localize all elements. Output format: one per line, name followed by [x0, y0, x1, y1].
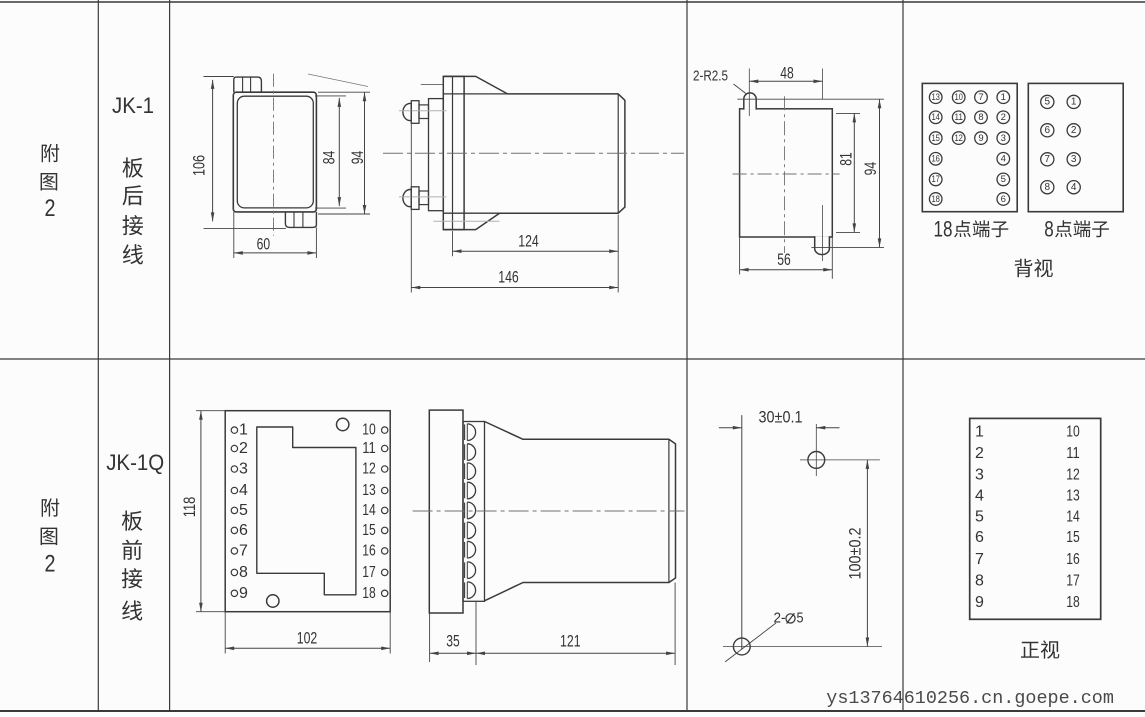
svg-text:8: 8: [978, 112, 983, 123]
svg-text:3: 3: [1071, 154, 1077, 165]
svg-text:13: 13: [1066, 487, 1080, 504]
svg-text:1: 1: [1001, 92, 1006, 103]
svg-text:1: 1: [1071, 97, 1077, 108]
svg-text:17: 17: [1066, 572, 1080, 589]
svg-text:6: 6: [1045, 125, 1051, 136]
svg-text:94: 94: [348, 151, 367, 165]
svg-text:10: 10: [954, 92, 963, 103]
svg-text:2-: 2-: [774, 610, 786, 627]
svg-text:94: 94: [861, 162, 880, 176]
svg-text:7: 7: [978, 92, 983, 103]
svg-text:5: 5: [1045, 97, 1051, 108]
svg-text:15: 15: [1066, 529, 1080, 546]
svg-text:12: 12: [1066, 467, 1080, 484]
svg-text:6: 6: [239, 522, 248, 539]
svg-text:4: 4: [1071, 182, 1077, 193]
svg-text:2-R2.5: 2-R2.5: [693, 68, 728, 85]
svg-text:16: 16: [362, 542, 376, 559]
svg-text:18: 18: [1066, 594, 1080, 611]
svg-text:5: 5: [1001, 174, 1006, 185]
svg-text:2: 2: [239, 440, 248, 457]
svg-text:15: 15: [931, 133, 940, 144]
svg-text:JK-1Q: JK-1Q: [106, 450, 164, 475]
svg-text:7: 7: [239, 542, 248, 559]
svg-text:11: 11: [362, 440, 376, 457]
svg-text:8: 8: [239, 564, 248, 581]
svg-text:35: 35: [446, 632, 460, 651]
svg-text:11: 11: [1066, 445, 1080, 462]
svg-text:121: 121: [560, 632, 581, 651]
svg-text:13: 13: [362, 482, 376, 499]
svg-text:5: 5: [975, 509, 984, 526]
svg-text:1: 1: [975, 423, 984, 440]
svg-text:6: 6: [975, 529, 984, 546]
svg-text:18: 18: [931, 194, 940, 205]
svg-text:2: 2: [975, 445, 984, 462]
svg-text:102: 102: [297, 628, 318, 647]
svg-text:12: 12: [362, 461, 376, 478]
svg-text:1: 1: [239, 422, 248, 439]
svg-text:11: 11: [954, 112, 963, 123]
svg-text:3: 3: [1001, 133, 1006, 144]
svg-text:17: 17: [931, 174, 940, 185]
svg-text:84: 84: [320, 151, 339, 165]
svg-text:4: 4: [1001, 154, 1006, 165]
svg-text:9: 9: [975, 594, 984, 611]
svg-text:18: 18: [362, 585, 376, 602]
svg-text:124: 124: [518, 231, 539, 250]
svg-text:4: 4: [239, 482, 248, 499]
svg-text:14: 14: [931, 112, 940, 123]
svg-text:7: 7: [1045, 154, 1051, 165]
svg-text:48: 48: [780, 64, 794, 83]
svg-text:13: 13: [931, 92, 940, 103]
svg-text:5: 5: [239, 502, 248, 519]
svg-text:3: 3: [239, 461, 248, 478]
svg-text:2: 2: [1001, 112, 1006, 123]
svg-text:10: 10: [1066, 423, 1080, 440]
svg-text:ys13764610256.cn.goepe.com: ys13764610256.cn.goepe.com: [826, 688, 1114, 709]
svg-text:6: 6: [1001, 194, 1006, 205]
svg-text:14: 14: [362, 502, 376, 519]
svg-text:JK-1: JK-1: [112, 93, 154, 118]
svg-text:15: 15: [362, 522, 376, 539]
svg-text:100±0.2: 100±0.2: [846, 528, 865, 580]
svg-text:12: 12: [954, 133, 963, 144]
svg-text:7: 7: [975, 551, 984, 568]
svg-text:16: 16: [931, 154, 940, 165]
svg-text:60: 60: [257, 235, 271, 254]
svg-text:56: 56: [777, 250, 791, 269]
svg-text:2: 2: [45, 550, 56, 577]
svg-text:4: 4: [975, 487, 984, 504]
svg-text:118: 118: [180, 497, 199, 518]
svg-text:30±0.1: 30±0.1: [759, 408, 803, 427]
svg-text:2: 2: [45, 195, 56, 222]
svg-text:8: 8: [1044, 217, 1054, 242]
svg-text:146: 146: [498, 268, 519, 287]
svg-text:8: 8: [975, 572, 984, 589]
svg-text:8: 8: [1045, 182, 1051, 193]
svg-text:9: 9: [239, 585, 248, 602]
svg-text:17: 17: [362, 564, 376, 581]
svg-text:106: 106: [189, 155, 208, 176]
svg-text:14: 14: [1066, 509, 1080, 526]
svg-text:16: 16: [1066, 551, 1080, 568]
svg-text:3: 3: [975, 467, 984, 484]
svg-text:9: 9: [978, 133, 983, 144]
svg-text:10: 10: [362, 422, 376, 439]
svg-text:2: 2: [1071, 125, 1077, 136]
svg-text:18: 18: [934, 217, 953, 242]
svg-text:81: 81: [837, 152, 856, 166]
svg-text:5: 5: [797, 610, 804, 627]
